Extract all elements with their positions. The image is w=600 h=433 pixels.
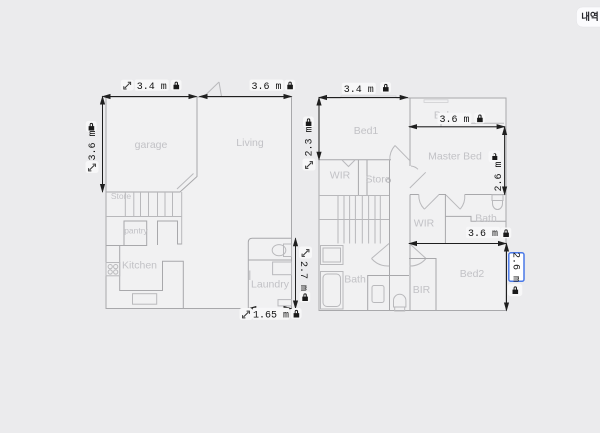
svg-text:3.6 m: 3.6 m xyxy=(88,130,99,160)
svg-text:3.6 m: 3.6 m xyxy=(468,229,498,240)
svg-text:Kitchen: Kitchen xyxy=(122,260,157,272)
svg-text:내역: 내역 xyxy=(581,11,598,23)
svg-text:WIR: WIR xyxy=(330,170,351,182)
svg-text:WIR: WIR xyxy=(414,218,435,230)
svg-text:Living: Living xyxy=(236,137,264,149)
svg-text:3.6 m: 3.6 m xyxy=(251,82,281,93)
svg-text:2.6 m: 2.6 m xyxy=(509,252,520,282)
svg-text:Bath: Bath xyxy=(344,274,366,286)
svg-text:2.6 m: 2.6 m xyxy=(494,161,505,191)
svg-text:1.65 m: 1.65 m xyxy=(253,310,289,321)
svg-text:2.3 m: 2.3 m xyxy=(305,126,316,156)
svg-text:Bed1: Bed1 xyxy=(354,125,379,137)
svg-text:garage: garage xyxy=(135,139,168,151)
svg-text:Bath: Bath xyxy=(475,213,497,225)
svg-text:3.6 m: 3.6 m xyxy=(439,115,469,126)
svg-text:2.7 m: 2.7 m xyxy=(297,261,308,291)
svg-text:BIR: BIR xyxy=(413,284,431,296)
svg-text:Store: Store xyxy=(365,174,390,186)
svg-text:Bed2: Bed2 xyxy=(460,268,485,280)
svg-text:pantry: pantry xyxy=(124,226,148,236)
svg-text:Laundry: Laundry xyxy=(251,279,290,291)
svg-text:Master Bed: Master Bed xyxy=(428,151,482,163)
svg-text:Store: Store xyxy=(111,191,132,201)
svg-text:3.4 m: 3.4 m xyxy=(344,85,374,96)
svg-text:3.4 m: 3.4 m xyxy=(137,82,167,93)
